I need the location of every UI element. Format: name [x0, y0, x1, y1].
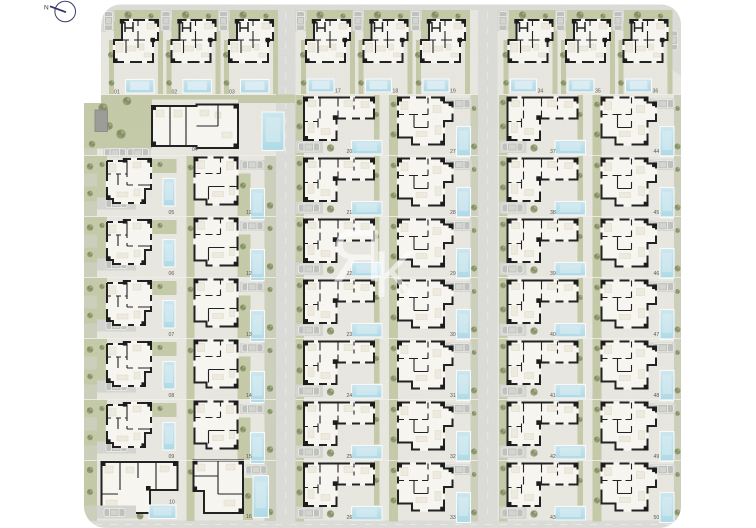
svg-text:N: N — [44, 5, 49, 12]
svg-text:K: K — [373, 237, 417, 311]
